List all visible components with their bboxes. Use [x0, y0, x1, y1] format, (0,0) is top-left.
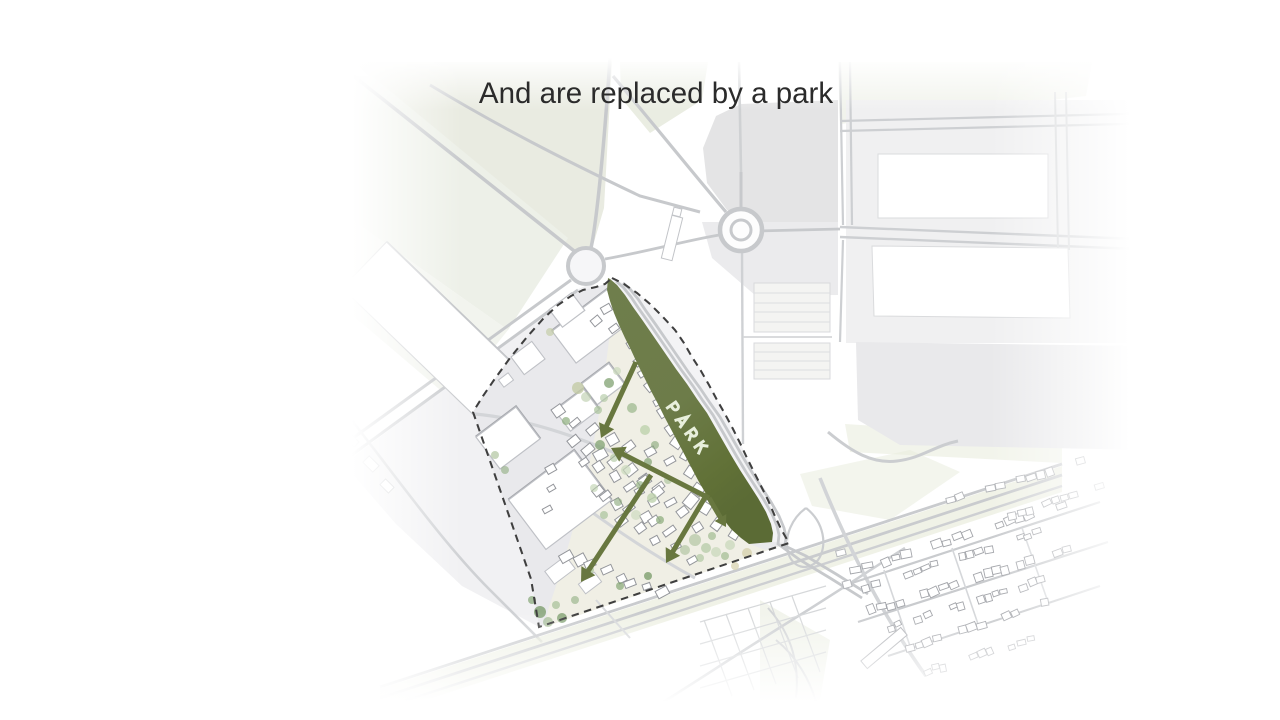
svg-text:And are replaced by a park: And are replaced by a park — [479, 77, 833, 110]
